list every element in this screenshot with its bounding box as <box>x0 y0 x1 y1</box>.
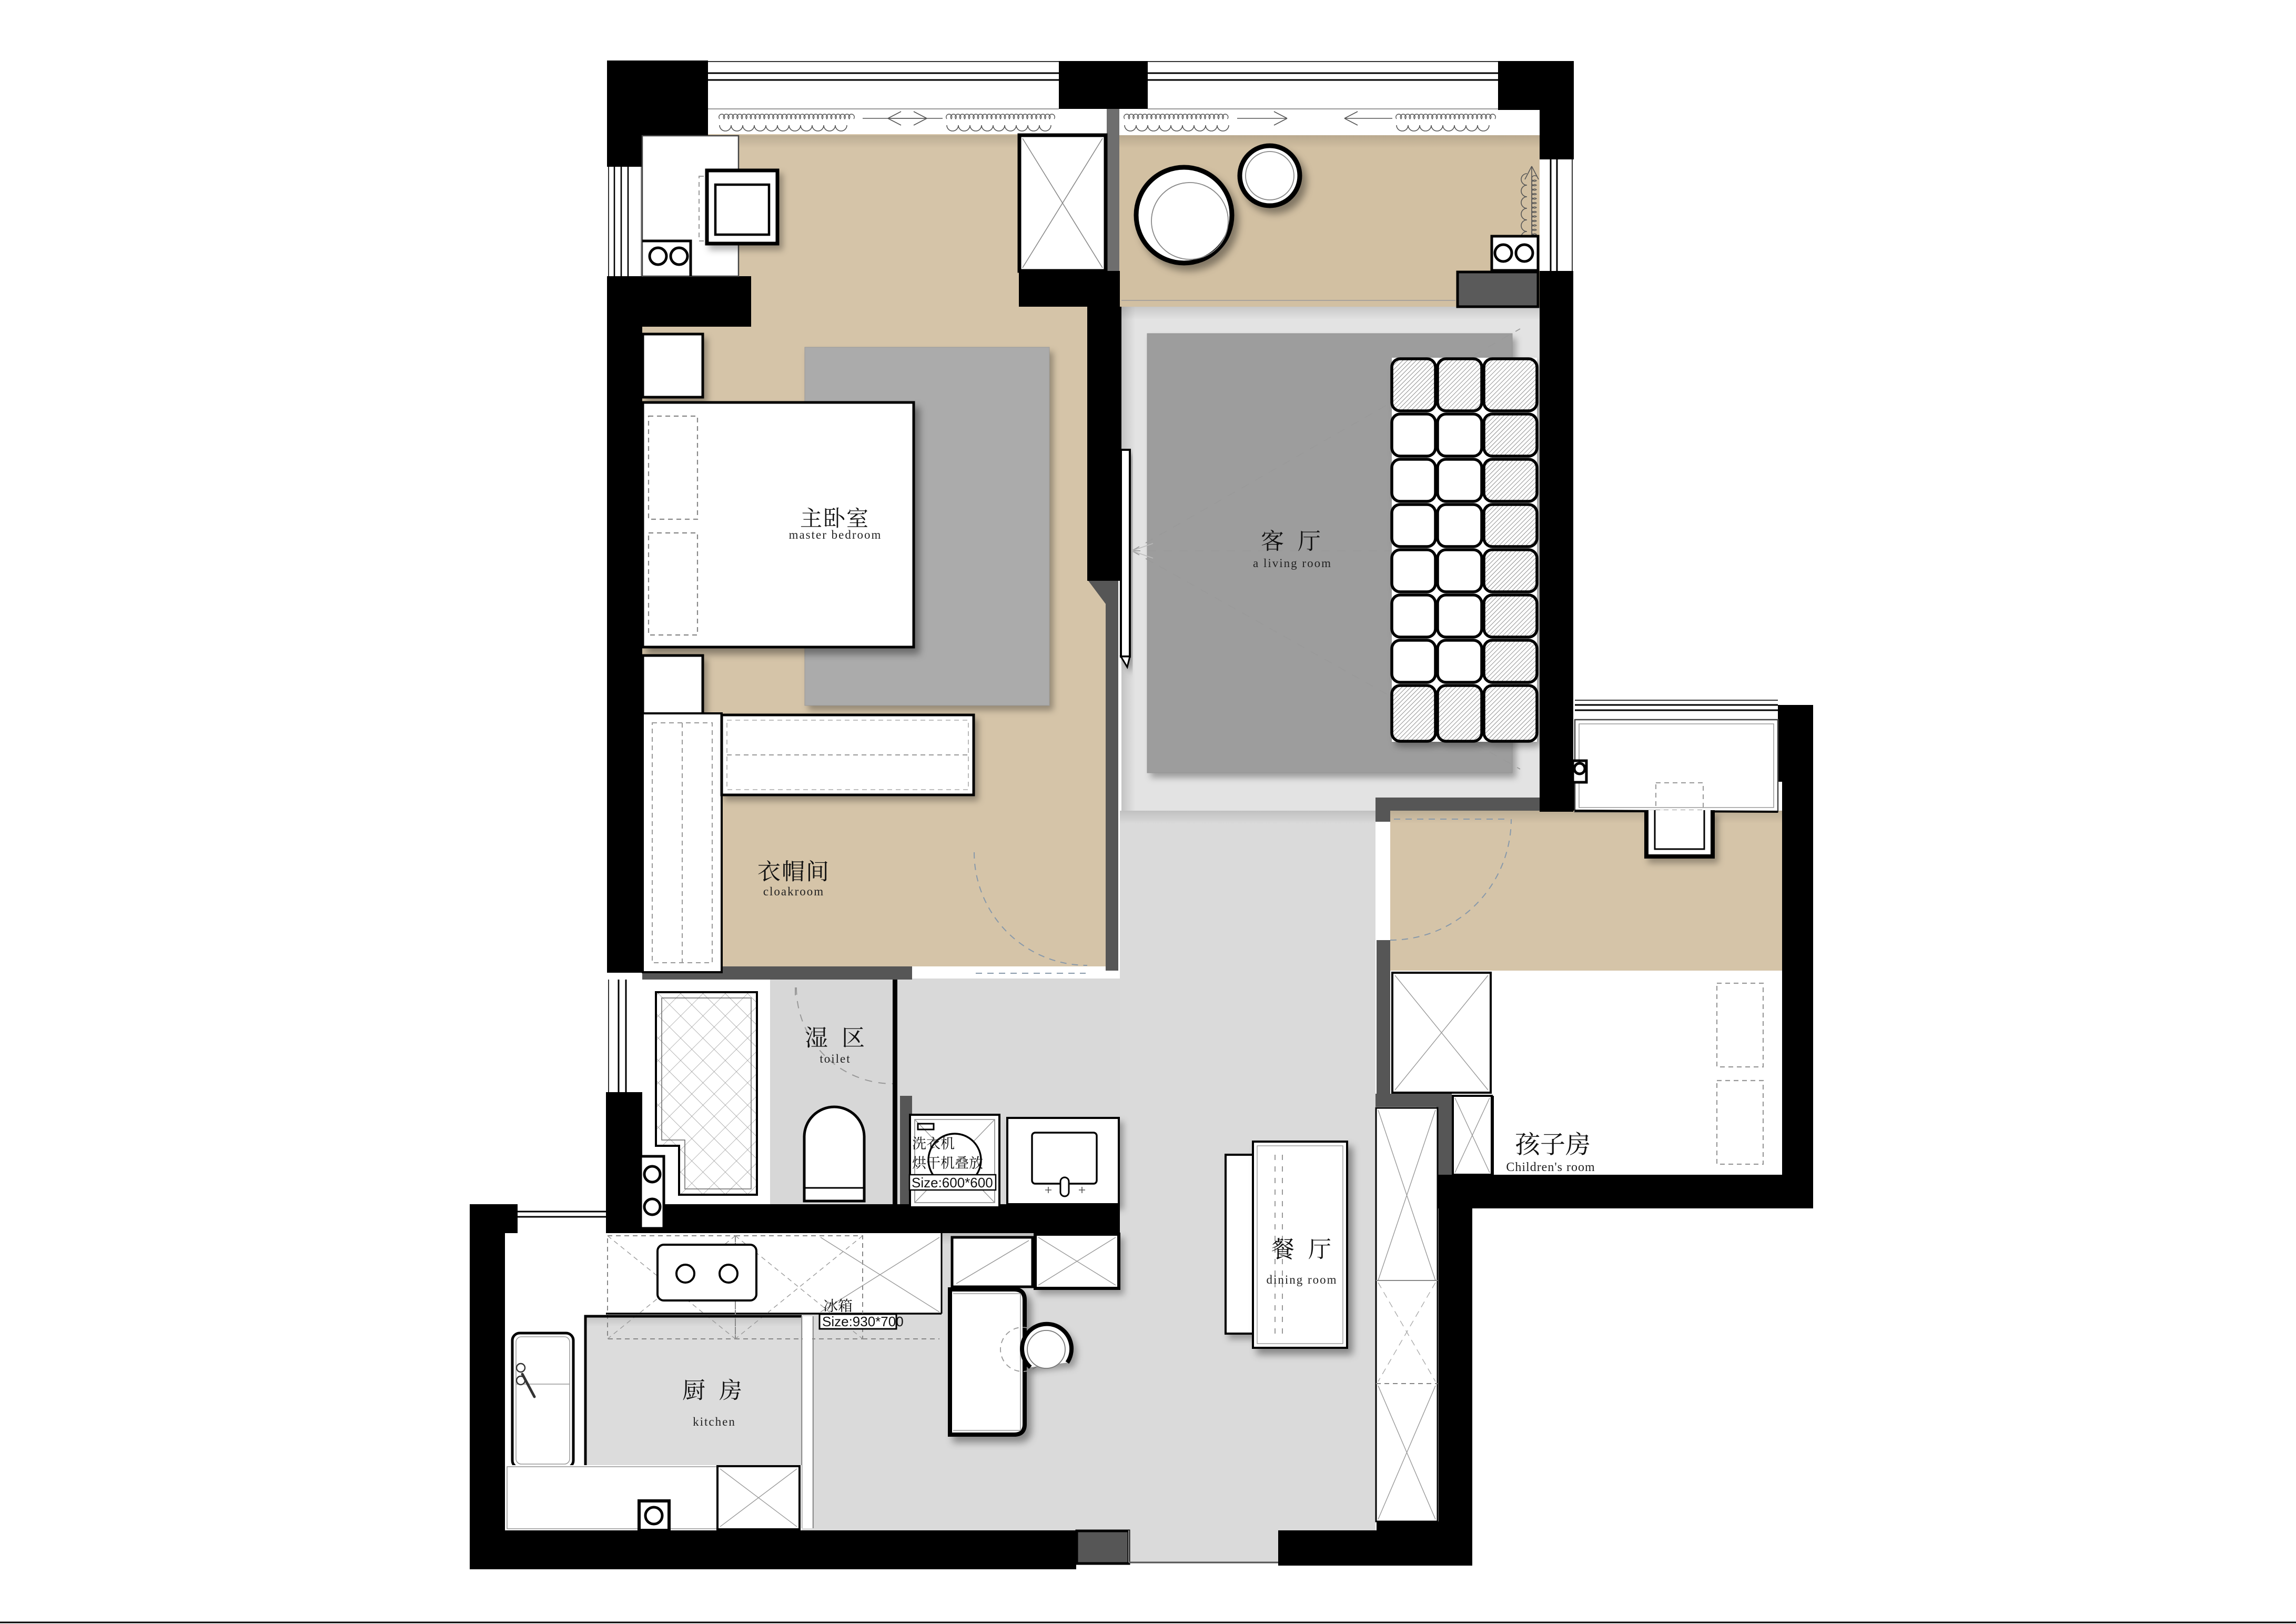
svg-text:a living room: a living room <box>1253 557 1332 570</box>
svg-text:Children's room: Children's room <box>1506 1161 1595 1174</box>
svg-text:kitchen: kitchen <box>693 1415 736 1428</box>
svg-text:Size:600*600: Size:600*600 <box>912 1175 993 1191</box>
svg-text:cloakroom: cloakroom <box>763 885 824 898</box>
svg-text:dining room: dining room <box>1266 1273 1337 1286</box>
svg-text:master bedroom: master bedroom <box>789 528 882 541</box>
svg-text:Size:930*700: Size:930*700 <box>822 1314 904 1329</box>
svg-text:toilet: toilet <box>820 1052 851 1065</box>
